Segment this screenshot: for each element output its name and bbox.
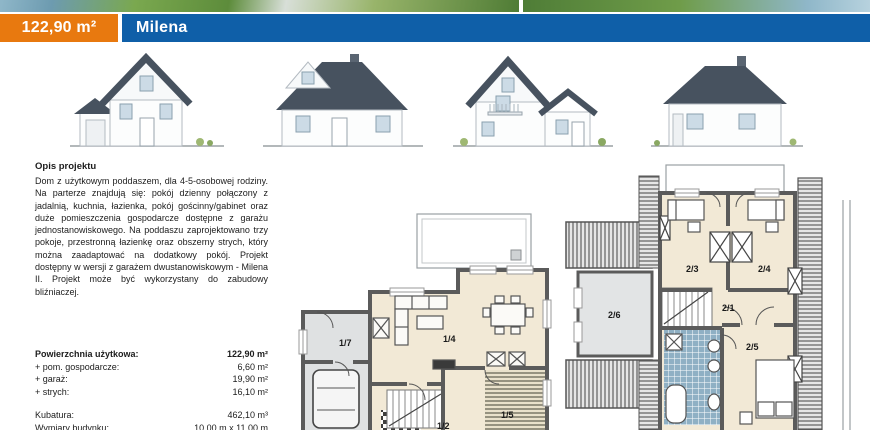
spec-row-wymiary: Wymiary budynku: 10,00 m x 11,00 m [35,422,268,430]
roof-slope-right [798,178,822,430]
spec-value: 462,10 m³ [227,409,268,422]
spec-label: + pom. gospodarcze: [35,361,119,374]
spec-label: Powierzchnia użytkowa: [35,348,139,361]
elevation-rear [643,52,813,152]
project-title: Milena [136,19,188,37]
ground-floor-plan: 1/7 1/4 1/2 1/5 [295,212,555,430]
room-label: 2/4 [758,264,771,274]
elevation-garden [448,52,618,152]
project-description: Opis projektu Dom z użytkowym poddaszem,… [35,160,268,298]
spec-value: 10,00 m x 11,00 m [194,422,268,430]
room-label: 1/4 [443,334,456,344]
spec-label: + strych: [35,386,69,399]
room-label: 2/5 [746,342,759,352]
roof-slope-left [639,176,659,268]
spec-row-kubatura: Kubatura: 462,10 m³ [35,409,268,422]
spec-row: Powierzchnia użytkowa: 122,90 m² [35,348,268,361]
stairs [662,288,712,328]
spec-value: 19,90 m² [232,373,268,386]
stairs [387,390,443,428]
room-label: 1/7 [339,338,352,348]
spec-row: + strych: 16,10 m² [35,386,268,399]
kitchen-floor [485,370,547,430]
spec-row: + pom. gospodarcze: 6,60 m² [35,361,268,374]
project-title-bar: Milena [122,14,870,42]
hero-photo-right [523,0,870,12]
car [313,370,359,428]
area-badge: 122,90 m² [0,14,118,42]
spec-label: Kubatura: [35,409,74,422]
spec-value: 16,10 m² [232,386,268,399]
elevation-side-left [258,52,428,152]
spec-row: + garaż: 19,90 m² [35,373,268,386]
upper-floor-plan: 2/6 2/3 2/4 2/1 2/5 [560,160,870,430]
room-label: 1/5 [501,410,514,420]
area-badge-label: 122,90 m² [22,19,97,37]
description-body: Dom z użytkowym poddaszem, dla 4-5-osobo… [35,175,268,298]
spec-value: 6,60 m² [237,361,268,374]
room-label: 1/2 [437,421,450,430]
hero-photo-left [0,0,519,12]
roof-slope-left-low [639,360,659,430]
elevation-front [62,52,232,152]
room-label: 2/6 [608,310,621,320]
spec-value: 122,90 m² [227,348,268,361]
room-label: 2/1 [722,303,735,313]
spec-label: Wymiary budynku: [35,422,109,430]
brochure-page: 122,90 m² Milena [0,0,870,430]
description-heading: Opis projektu [35,160,268,173]
spec-table: Powierzchnia użytkowa: 122,90 m² + pom. … [35,348,268,430]
room-label: 2/3 [686,264,699,274]
spec-label: + garaż: [35,373,68,386]
